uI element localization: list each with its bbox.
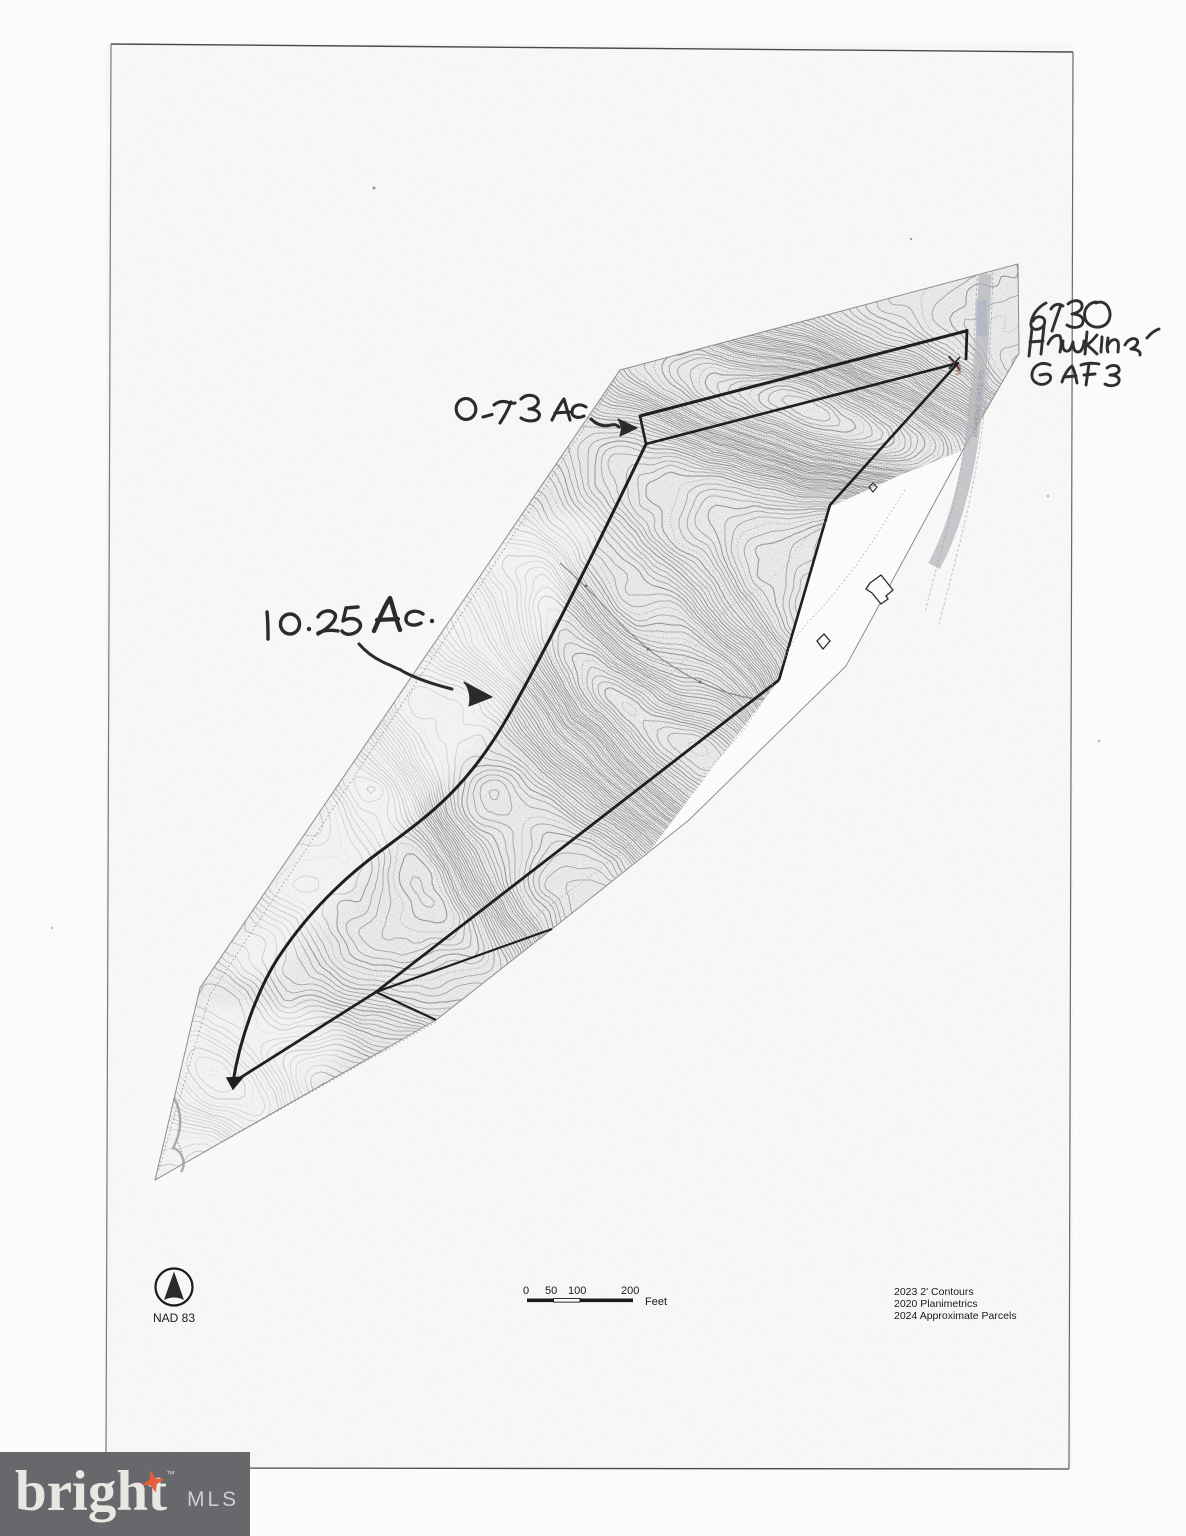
svg-text:0: 0 bbox=[523, 1285, 529, 1297]
svg-text:2024 Approximate Parcels: 2024 Approximate Parcels bbox=[894, 1310, 1017, 1322]
svg-text:200: 200 bbox=[621, 1285, 639, 1297]
svg-text:2020 Planimetrics: 2020 Planimetrics bbox=[894, 1298, 977, 1310]
svg-text:NAD 83: NAD 83 bbox=[153, 1311, 195, 1325]
svg-text:100: 100 bbox=[568, 1285, 586, 1297]
svg-text:MLS: MLS bbox=[187, 1488, 239, 1511]
svg-text:50: 50 bbox=[545, 1285, 557, 1297]
svg-text:™: ™ bbox=[166, 1469, 175, 1479]
svg-text:2023 2' Contours: 2023 2' Contours bbox=[894, 1286, 974, 1298]
svg-text:Feet: Feet bbox=[645, 1296, 667, 1308]
svg-text:bright: bright bbox=[15, 1460, 167, 1523]
